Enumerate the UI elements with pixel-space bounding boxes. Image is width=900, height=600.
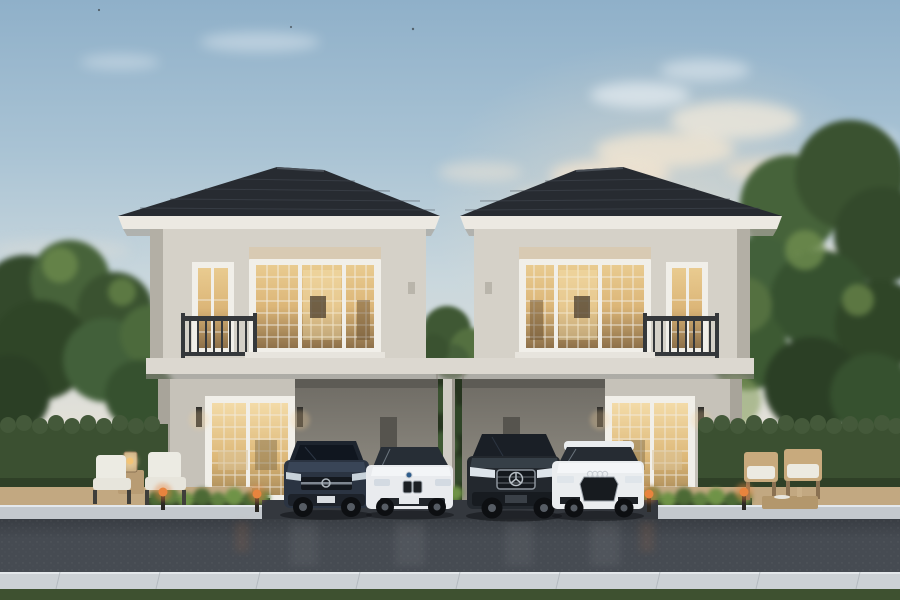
interior-sofa-hint	[218, 450, 248, 470]
upper-wall-edge	[150, 229, 163, 360]
roller-shade-box	[249, 247, 381, 260]
band-shadow	[146, 374, 438, 379]
french-door-mullion	[246, 403, 250, 495]
window-mullion	[298, 265, 302, 348]
table-dish	[774, 495, 790, 499]
window-sill	[245, 352, 385, 358]
road-texture	[0, 519, 900, 572]
sconce-glow	[189, 410, 209, 430]
interior-art	[310, 296, 326, 318]
render-canvas	[0, 0, 900, 600]
sconce-glow	[290, 410, 310, 430]
gutter-highlight	[0, 572, 900, 574]
floor-band	[146, 358, 438, 374]
window-mullion	[342, 265, 346, 348]
car-dark-suv-mercedes	[466, 434, 562, 522]
interior-furniture-hint	[255, 440, 277, 470]
roof-fascia	[118, 216, 440, 229]
wall-vent	[408, 282, 415, 294]
interior-shelf	[357, 300, 370, 340]
carport-beam-gap	[436, 358, 464, 374]
car-white-hatch-audi	[552, 441, 644, 521]
bmw-badge	[406, 472, 412, 478]
table-bottle	[797, 487, 802, 497]
scene-svg	[0, 0, 900, 600]
curb-highlight	[0, 505, 262, 507]
carport-beam-shadow	[436, 374, 464, 379]
grass-strip	[0, 589, 900, 600]
gutter-pavers	[0, 572, 900, 589]
lantern-flame	[127, 458, 134, 465]
carport-ceiling-shadow	[295, 379, 438, 388]
low-table	[762, 496, 818, 509]
curb-left	[0, 505, 262, 519]
car-white-sedan-bmw	[366, 447, 454, 520]
